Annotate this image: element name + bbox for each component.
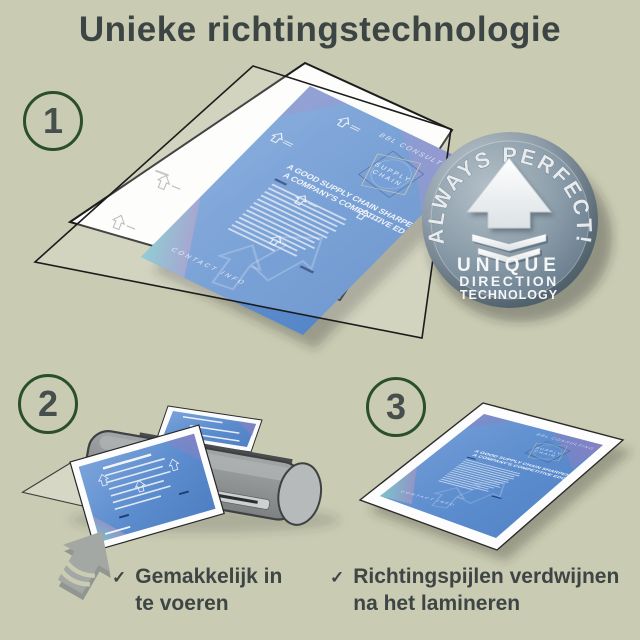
infographic-artwork: BBL CONSULTING SUPPLY CHAIN A GOOD SUPPL… xyxy=(0,0,640,640)
benefit-easy-feed: ✓ Gemakkelijk in te voeren xyxy=(112,564,282,618)
step-3-number: 3 xyxy=(386,386,406,428)
badge-line-technology: TECHNOLOGY xyxy=(460,288,558,302)
step-1-circle: 1 xyxy=(23,91,83,151)
benefit-line: te voeren xyxy=(135,592,228,615)
step-1-number: 1 xyxy=(43,100,63,142)
benefit-line: na het lamineren xyxy=(353,592,520,615)
step-3-circle: 3 xyxy=(366,377,426,437)
step-2-circle: 2 xyxy=(18,374,78,434)
step-2-number: 2 xyxy=(38,383,58,425)
page-title: Unieke richtingstechnologie xyxy=(0,10,640,50)
benefit-line: Gemakkelijk in xyxy=(135,565,282,588)
badge-line-direction: DIRECTION xyxy=(459,273,559,289)
benefit-line: Richtingspijlen verdwijnen xyxy=(353,565,619,588)
always-perfect-badge: ALWAYS PERFECT! UNIQUE DIRECTION TECHNOL… xyxy=(422,132,612,322)
step1-pouch-illustration xyxy=(35,63,485,349)
checkmark-icon: ✓ xyxy=(330,567,344,618)
checkmark-icon: ✓ xyxy=(112,567,126,618)
benefit-arrows-disappear: ✓ Richtingspijlen verdwijnen na het lami… xyxy=(330,564,619,618)
infographic-page: BBL CONSULTING SUPPLY CHAIN A GOOD SUPPL… xyxy=(0,0,640,640)
